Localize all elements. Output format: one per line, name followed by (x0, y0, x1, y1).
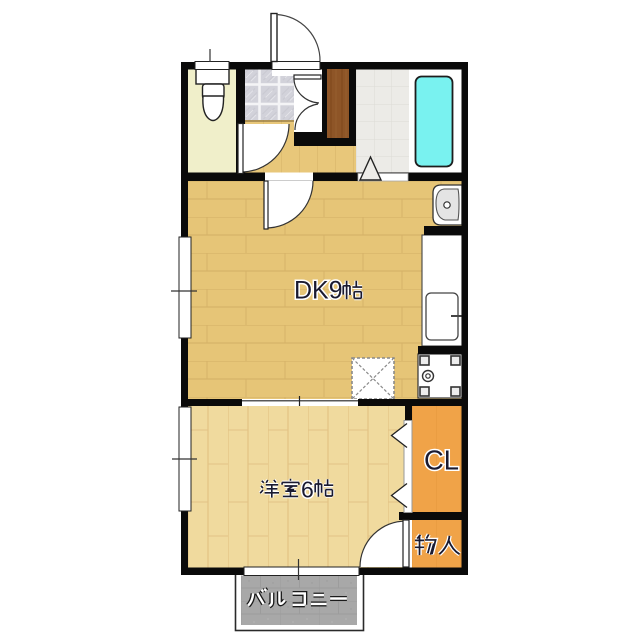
svg-text:6: 6 (301, 477, 314, 503)
svg-text:DK9: DK9 (294, 277, 343, 305)
svg-text:CL: CL (424, 445, 459, 476)
